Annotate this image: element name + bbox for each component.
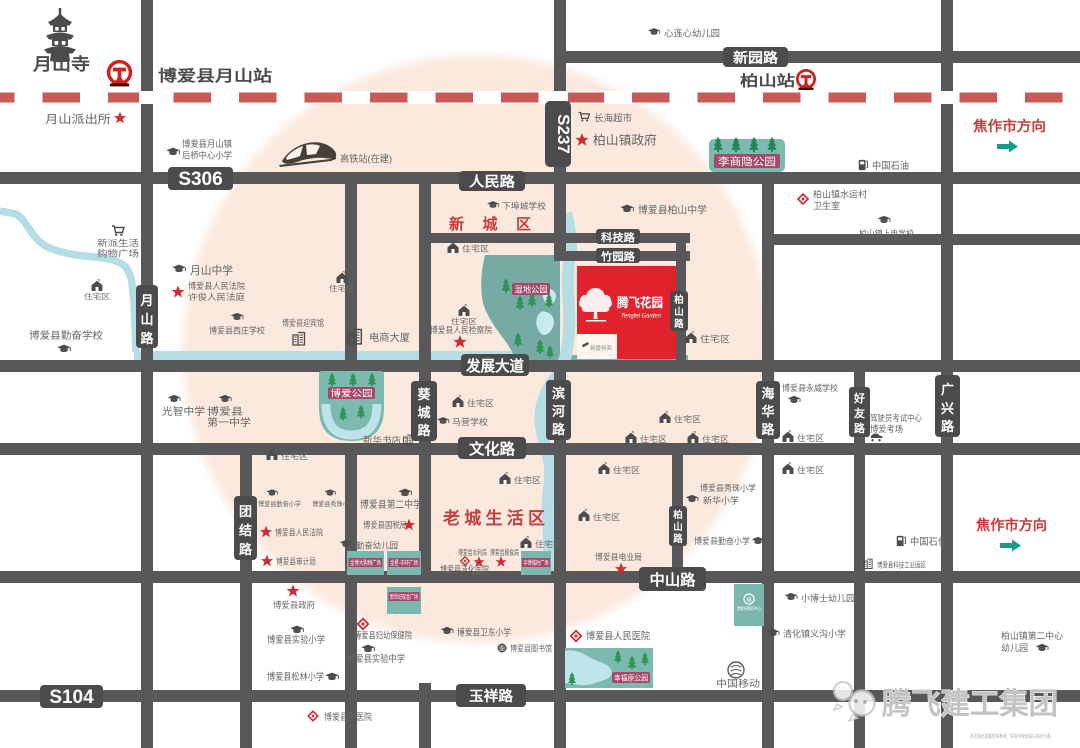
svg-text:团: 团 xyxy=(239,504,252,519)
svg-text:老城生活区: 老城生活区 xyxy=(442,508,545,528)
svg-text:^ ^: ^ ^ xyxy=(838,687,845,693)
svg-text:李商隐公园: 李商隐公园 xyxy=(718,155,776,168)
svg-text:电商大厦: 电商大厦 xyxy=(369,331,410,344)
svg-text:住宅区: 住宅区 xyxy=(640,434,667,444)
svg-text:博爱县秀珠小学: 博爱县秀珠小学 xyxy=(312,499,355,508)
svg-text:博爱县柏山中学: 博爱县柏山中学 xyxy=(638,204,707,217)
svg-text:住宅区: 住宅区 xyxy=(84,291,111,301)
svg-text:博爱县西庄学校: 博爱县西庄学校 xyxy=(209,326,265,336)
svg-text:新盘特卖: 新盘特卖 xyxy=(590,344,613,352)
svg-text:博爱县月山站: 博爱县月山站 xyxy=(158,66,273,85)
svg-text:光智中学: 光智中学 xyxy=(162,405,205,418)
svg-text:博爱县永威学校: 博爱县永威学校 xyxy=(782,383,838,393)
svg-text:S104: S104 xyxy=(49,687,94,708)
svg-text:住宅区: 住宅区 xyxy=(514,475,541,485)
svg-text:住宅区: 住宅区 xyxy=(593,512,620,522)
svg-text:月: 月 xyxy=(139,293,153,308)
svg-text:新华小学: 新华小学 xyxy=(703,496,740,506)
svg-text:湿地公园: 湿地公园 xyxy=(515,285,548,295)
svg-text:博爱县月山镇: 博爱县月山镇 xyxy=(182,138,232,149)
svg-text:住宅区: 住宅区 xyxy=(462,244,489,254)
svg-text:住宅区: 住宅区 xyxy=(451,316,478,326)
svg-text:博爱考场: 博爱考场 xyxy=(870,424,903,434)
svg-text:卫生室: 卫生室 xyxy=(813,200,840,211)
svg-text:山: 山 xyxy=(674,306,684,318)
svg-text:科技路: 科技路 xyxy=(601,231,636,244)
svg-text:新园路: 新园路 xyxy=(733,50,779,66)
svg-text:S306: S306 xyxy=(178,169,222,190)
svg-text:博爱县福彩中心: 博爱县福彩中心 xyxy=(737,605,761,612)
svg-text:博爱县中医院: 博爱县中医院 xyxy=(324,711,372,722)
svg-text:住宅区: 住宅区 xyxy=(467,398,494,408)
svg-text:柏山镇第二中心: 柏山镇第二中心 xyxy=(1001,630,1063,641)
svg-text:新世纪现金广场: 新世纪现金广场 xyxy=(390,593,418,601)
svg-text:幸福原公园: 幸福原公园 xyxy=(614,674,648,683)
svg-text:博爱县电业局: 博爱县电业局 xyxy=(595,552,642,562)
svg-text:住宅区: 住宅区 xyxy=(535,539,562,549)
svg-text:金博大购物广场: 金博大购物广场 xyxy=(350,559,381,567)
svg-text:博爱县粮食局: 博爱县粮食局 xyxy=(490,547,519,557)
svg-text:新城区: 新城区 xyxy=(449,215,531,233)
svg-text:下埠城学校: 下埠城学校 xyxy=(502,201,547,211)
svg-text:许俊人民法庭: 许俊人民法庭 xyxy=(188,292,246,302)
svg-text:清化镇义沟小学: 清化镇义沟小学 xyxy=(783,628,846,639)
svg-text:柏: 柏 xyxy=(674,294,684,306)
svg-text:心连心幼儿园: 心连心幼儿园 xyxy=(664,28,720,39)
svg-text:葵: 葵 xyxy=(417,387,431,402)
svg-text:博爱县科技工业园区: 博爱县科技工业园区 xyxy=(877,560,926,570)
svg-text:海: 海 xyxy=(761,386,774,401)
svg-text:后桥中心小学: 后桥中心小学 xyxy=(182,150,232,161)
svg-text:腾飞建工集团: 腾飞建工集团 xyxy=(882,688,1058,721)
svg-text:博爱县松林小学: 博爱县松林小学 xyxy=(267,671,324,683)
svg-text:博爱县政府: 博爱县政府 xyxy=(273,600,315,610)
svg-text:博爱县秀珠小学: 博爱县秀珠小学 xyxy=(700,483,756,493)
svg-text:长海超市: 长海超市 xyxy=(594,113,632,125)
svg-text:购物广场: 购物广场 xyxy=(97,249,139,259)
svg-text:路: 路 xyxy=(140,331,154,346)
svg-text:中山路: 中山路 xyxy=(650,571,697,589)
svg-text:新华书店: 新华书店 xyxy=(363,435,402,445)
svg-text:博爱县勤奋小学: 博爱县勤奋小学 xyxy=(258,499,301,508)
svg-text:竹园路: 竹园路 xyxy=(600,250,636,263)
svg-text:路: 路 xyxy=(552,422,566,437)
svg-text:路: 路 xyxy=(673,533,683,545)
svg-text:勤奋幼儿园: 勤奋幼儿园 xyxy=(356,541,398,551)
svg-text:博爱县审计局: 博爱县审计局 xyxy=(276,557,316,567)
svg-text:柏山站: 柏山站 xyxy=(740,72,796,90)
svg-text:月山中学: 月山中学 xyxy=(190,263,233,277)
svg-text:博爱县国税局: 博爱县国税局 xyxy=(363,520,407,530)
svg-text:好: 好 xyxy=(853,391,865,405)
svg-text:中国移动: 中国移动 xyxy=(716,678,760,690)
svg-text:博爱县人民法院: 博爱县人民法院 xyxy=(188,281,245,291)
svg-text:博爱县迎宾馆: 博爱县迎宾馆 xyxy=(282,318,324,328)
svg-text:博爱县人民医院: 博爱县人民医院 xyxy=(586,630,650,643)
svg-text:博爱县图书馆: 博爱县图书馆 xyxy=(510,644,552,654)
svg-text:玉祥路: 玉祥路 xyxy=(469,688,514,704)
svg-text:博爱县勤奋小学: 博爱县勤奋小学 xyxy=(694,536,750,546)
svg-text:住宅区: 住宅区 xyxy=(797,465,824,475)
svg-text:住宅区: 住宅区 xyxy=(674,414,701,424)
svg-text:月山寺: 月山寺 xyxy=(32,54,90,74)
svg-text:小博士幼儿园: 小博士幼儿园 xyxy=(801,593,855,604)
svg-text:路: 路 xyxy=(417,423,431,438)
svg-text:腾飞花园: 腾飞花园 xyxy=(616,295,663,310)
svg-text:博爱县人民检察院: 博爱县人民检察院 xyxy=(430,325,492,335)
svg-text:第一中学: 第一中学 xyxy=(207,416,251,429)
svg-text:住宅区: 住宅区 xyxy=(329,283,356,293)
svg-text:驾驶员考试中心: 驾驶员考试中心 xyxy=(870,413,922,423)
svg-text:住宅区: 住宅区 xyxy=(281,451,308,461)
svg-text:路: 路 xyxy=(941,419,955,434)
svg-text:月山派出所: 月山派出所 xyxy=(45,112,112,126)
svg-text:博爱县实验小学: 博爱县实验小学 xyxy=(267,634,325,646)
svg-text:博爱县勤奋学校: 博爱县勤奋学校 xyxy=(29,329,103,342)
svg-text:人民路: 人民路 xyxy=(469,174,516,190)
svg-text:友: 友 xyxy=(854,406,865,420)
svg-text:住宅区: 住宅区 xyxy=(700,334,731,344)
svg-text:中博城时广场: 中博城时广场 xyxy=(524,559,549,567)
svg-text:博爱县: 博爱县 xyxy=(207,405,243,418)
svg-text:幼儿园: 幼儿园 xyxy=(1001,642,1028,653)
svg-text:柏山镇水运村: 柏山镇水运村 xyxy=(813,189,867,200)
svg-text:博爱县水利局: 博爱县水利局 xyxy=(458,547,487,557)
svg-text:发展大道: 发展大道 xyxy=(465,357,524,375)
svg-text:住宅区: 住宅区 xyxy=(613,465,640,475)
svg-text:博爱县实验中学: 博爱县实验中学 xyxy=(347,653,405,665)
svg-text:Tengfei Garden: Tengfei Garden xyxy=(621,313,661,320)
svg-text:文化路: 文化路 xyxy=(469,440,516,458)
svg-text:中国石化: 中国石化 xyxy=(910,536,947,548)
svg-text:新派生活: 新派生活 xyxy=(97,238,140,248)
svg-text:高铁站(在建): 高铁站(在建) xyxy=(340,153,392,165)
svg-text:博爱县清化医院: 博爱县清化医院 xyxy=(440,564,489,576)
svg-text:路: 路 xyxy=(239,542,253,557)
svg-text:路: 路 xyxy=(761,422,775,437)
svg-text:兴: 兴 xyxy=(941,401,954,416)
svg-text:滨: 滨 xyxy=(552,386,565,401)
svg-text:博爱县第二中学: 博爱县第二中学 xyxy=(360,498,422,511)
svg-text:金星·中环广场: 金星·中环广场 xyxy=(390,559,418,567)
svg-text:博爱公园: 博爱公园 xyxy=(331,388,373,399)
svg-text:结: 结 xyxy=(239,523,252,538)
svg-text:S237: S237 xyxy=(554,114,573,154)
svg-text:路: 路 xyxy=(674,318,684,330)
svg-text:柏山镇上电学校: 柏山镇上电学校 xyxy=(859,228,914,239)
svg-text:路: 路 xyxy=(854,421,866,435)
svg-text:博爱县卫东小学: 博爱县卫东小学 xyxy=(457,627,511,638)
svg-text:博爱县妇幼保健院: 博爱县妇幼保健院 xyxy=(354,630,412,641)
svg-text:山: 山 xyxy=(673,521,683,533)
svg-text:华: 华 xyxy=(761,404,774,419)
svg-text:博爱县人民法院: 博爱县人民法院 xyxy=(275,528,323,538)
svg-text:河: 河 xyxy=(552,404,565,419)
svg-text:马营学校: 马营学校 xyxy=(452,417,489,427)
svg-text:柏山镇政府: 柏山镇政府 xyxy=(593,133,657,148)
svg-text:住宅区: 住宅区 xyxy=(797,433,824,443)
svg-text:柏: 柏 xyxy=(673,509,683,521)
svg-text:焦作市方向: 焦作市方向 xyxy=(972,118,1046,134)
svg-text:广: 广 xyxy=(941,382,954,397)
svg-text:焦作市方向: 焦作市方向 xyxy=(975,517,1047,533)
svg-text:福: 福 xyxy=(746,597,751,604)
svg-text:本区域示意图仅供参考，实际与规划请以实际为准。: 本区域示意图仅供参考，实际与规划请以实际为准。 xyxy=(970,733,1054,740)
svg-text:城: 城 xyxy=(417,405,430,420)
svg-text:图: 图 xyxy=(499,645,505,653)
svg-text:山: 山 xyxy=(140,312,153,327)
svg-text:住宅区: 住宅区 xyxy=(702,434,729,444)
svg-text:中国石油: 中国石油 xyxy=(872,160,909,172)
